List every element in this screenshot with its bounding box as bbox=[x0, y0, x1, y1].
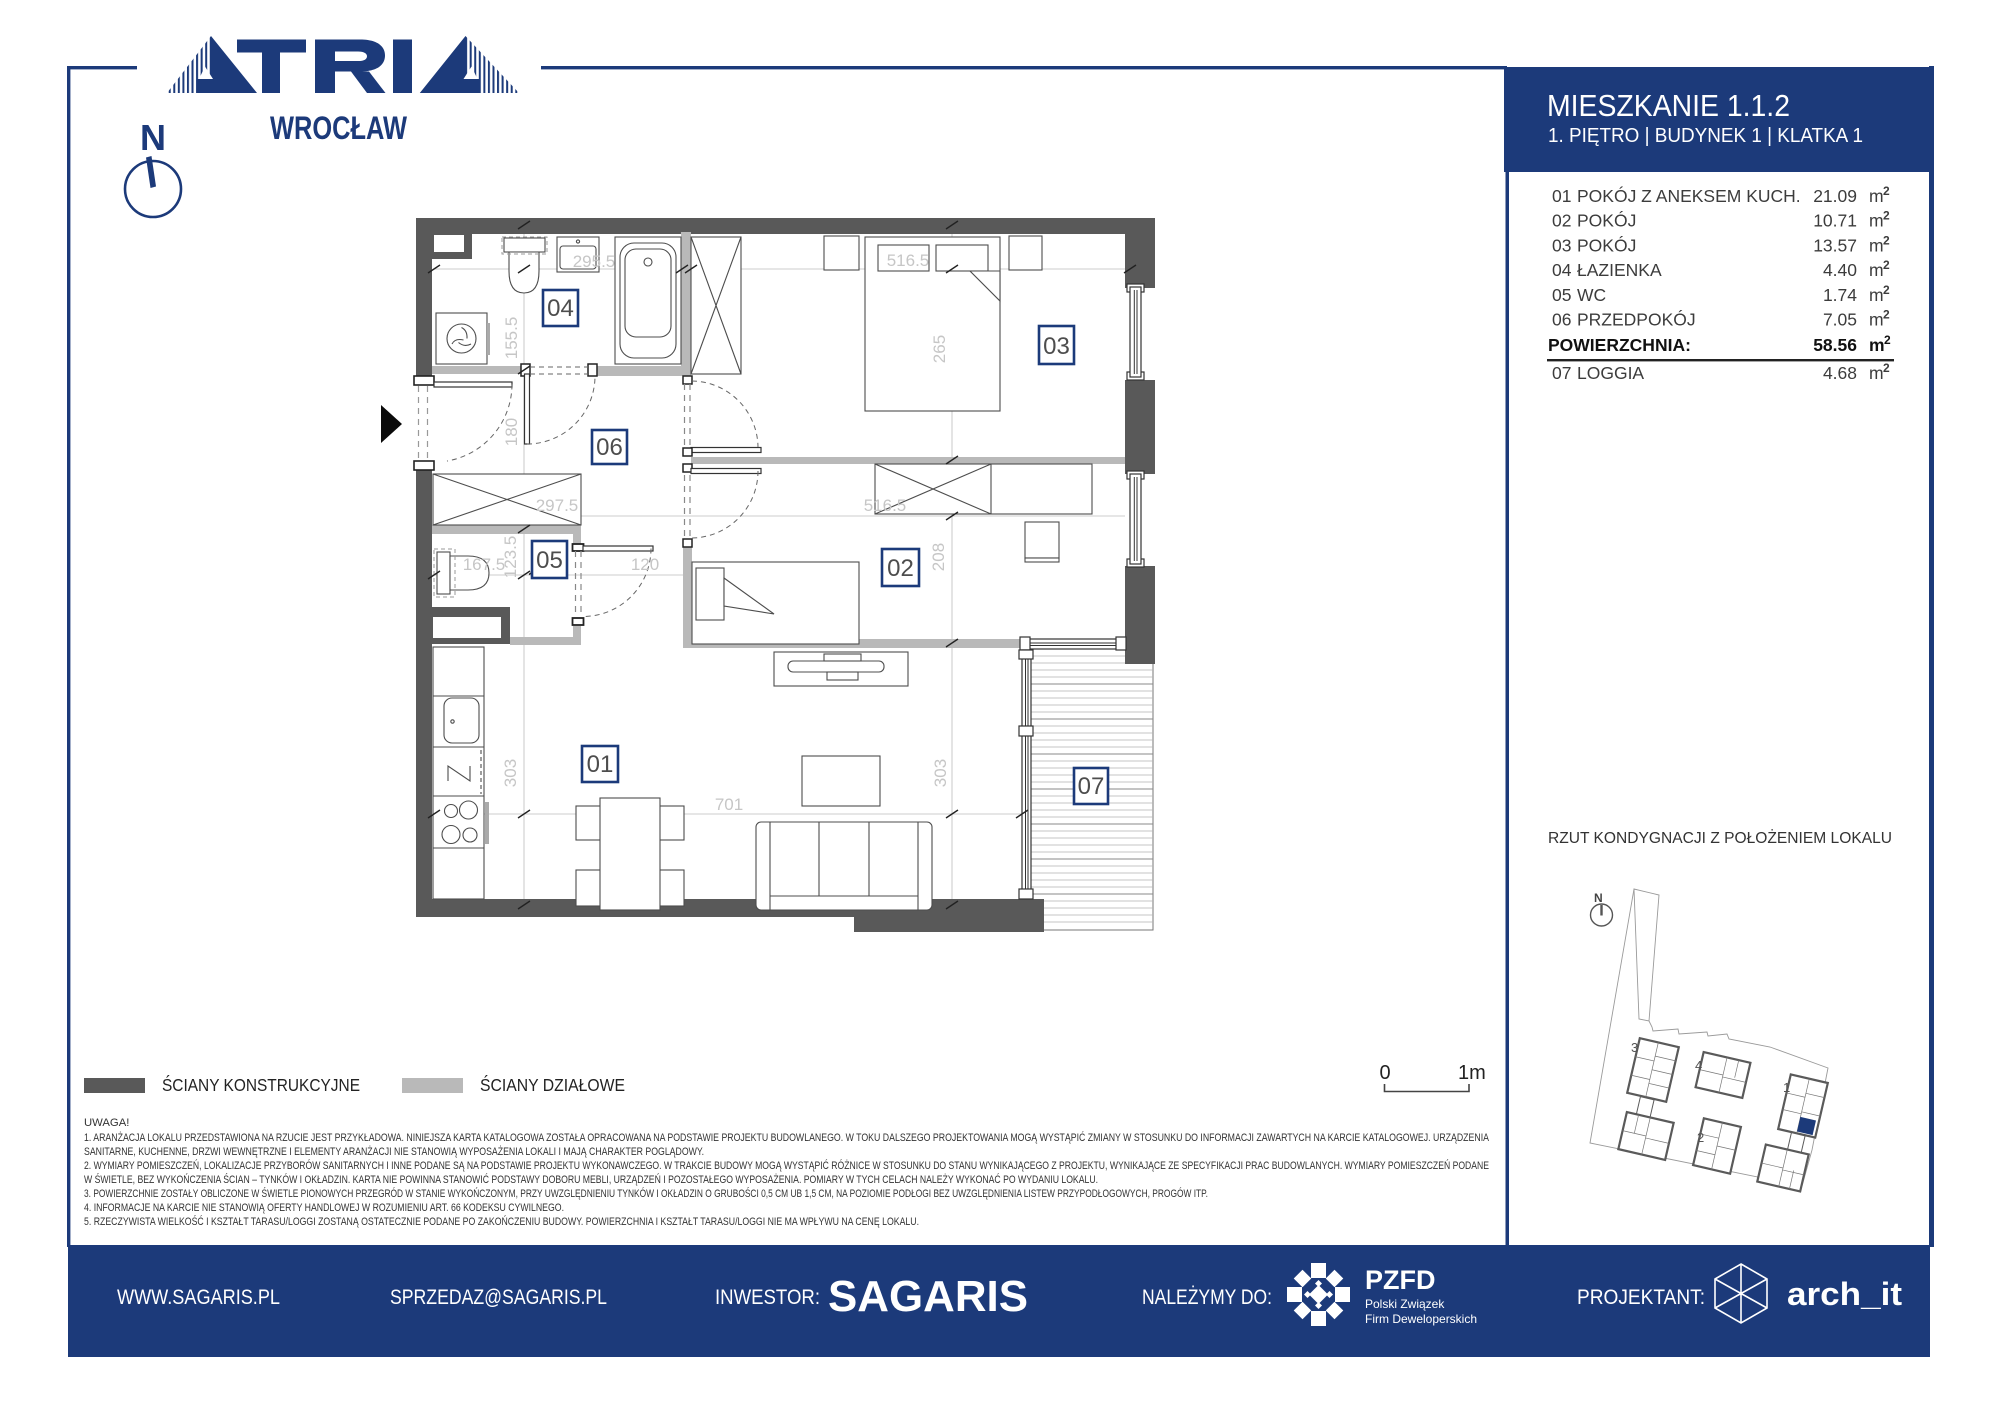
svg-text:INWESTOR:: INWESTOR: bbox=[715, 1286, 820, 1309]
svg-text:04: 04 bbox=[547, 295, 574, 322]
svg-text:POKÓJ: POKÓJ bbox=[1577, 210, 1636, 231]
svg-text:Polski Związek: Polski Związek bbox=[1365, 1297, 1445, 1311]
svg-text:58.56: 58.56 bbox=[1813, 335, 1857, 355]
svg-text:WROCŁAW: WROCŁAW bbox=[270, 110, 408, 146]
svg-text:21.09: 21.09 bbox=[1813, 186, 1857, 206]
svg-text:m: m bbox=[1869, 186, 1884, 206]
svg-text:NALEŻYMY DO:: NALEŻYMY DO: bbox=[1142, 1286, 1272, 1309]
svg-text:05: 05 bbox=[536, 547, 563, 574]
svg-text:2: 2 bbox=[1883, 233, 1890, 247]
svg-text:13.57: 13.57 bbox=[1813, 235, 1857, 255]
svg-text:303: 303 bbox=[931, 759, 950, 787]
svg-text:POKÓJ: POKÓJ bbox=[1577, 234, 1636, 255]
svg-text:01: 01 bbox=[587, 751, 614, 778]
svg-text:10.71: 10.71 bbox=[1813, 211, 1857, 231]
svg-text:N: N bbox=[140, 117, 166, 158]
svg-text:ŁAZIENKA: ŁAZIENKA bbox=[1577, 260, 1662, 280]
svg-text:m: m bbox=[1869, 310, 1884, 330]
svg-text:4: 4 bbox=[1695, 1058, 1702, 1073]
svg-text:208: 208 bbox=[929, 543, 948, 571]
svg-text:03: 03 bbox=[1552, 235, 1571, 255]
svg-text:SAGARIS: SAGARIS bbox=[828, 1272, 1028, 1321]
svg-text:05: 05 bbox=[1552, 285, 1571, 305]
svg-text:0: 0 bbox=[1379, 1062, 1390, 1084]
svg-text:07: 07 bbox=[1552, 363, 1571, 383]
svg-text:04: 04 bbox=[1552, 260, 1572, 280]
svg-text:265: 265 bbox=[930, 335, 949, 363]
svg-text:1. PIĘTRO | BUDYNEK 1 | KLATKA: 1. PIĘTRO | BUDYNEK 1 | KLATKA 1 bbox=[1548, 124, 1863, 147]
svg-text:295.5: 295.5 bbox=[573, 252, 616, 271]
svg-text:3. POWIERZCHNIE ZOSTAŁY OBLICZ: 3. POWIERZCHNIE ZOSTAŁY OBLICZONE W ŚWIE… bbox=[84, 1187, 1208, 1200]
svg-text:ŚCIANY KONSTRUKCYJNE: ŚCIANY KONSTRUKCYJNE bbox=[162, 1074, 360, 1095]
svg-text:N: N bbox=[1594, 891, 1603, 905]
svg-text:m: m bbox=[1869, 235, 1884, 255]
svg-text:4.40: 4.40 bbox=[1823, 260, 1857, 280]
svg-text:03: 03 bbox=[1043, 333, 1070, 360]
svg-text:123.5: 123.5 bbox=[501, 536, 520, 579]
svg-text:5. RZECZYWISTA WIELKOŚĆ I KSZT: 5. RZECZYWISTA WIELKOŚĆ I KSZTAŁT TARASU… bbox=[84, 1215, 919, 1228]
svg-text:m: m bbox=[1869, 285, 1884, 305]
svg-text:2: 2 bbox=[1697, 1130, 1704, 1145]
svg-text:Firm Deweloperskich: Firm Deweloperskich bbox=[1365, 1312, 1477, 1326]
svg-text:PRZEDPOKÓJ: PRZEDPOKÓJ bbox=[1577, 309, 1696, 330]
svg-text:1m: 1m bbox=[1458, 1062, 1486, 1084]
svg-text:arch_it: arch_it bbox=[1787, 1276, 1902, 1312]
svg-text:MIESZKANIE 1.1.2: MIESZKANIE 1.1.2 bbox=[1547, 88, 1790, 123]
svg-text:3: 3 bbox=[1631, 1040, 1638, 1055]
svg-text:m: m bbox=[1869, 335, 1885, 355]
svg-text:1. ARANŻACJA LOKALU PRZEDSTAWI: 1. ARANŻACJA LOKALU PRZEDSTAWIONA NA RZU… bbox=[84, 1131, 1489, 1144]
svg-text:2. WYMIARY POMIESZCZEŃ, LOKALI: 2. WYMIARY POMIESZCZEŃ, LOKALIZACJE PRZY… bbox=[84, 1159, 1489, 1172]
svg-text:516.5: 516.5 bbox=[887, 251, 930, 270]
svg-text:PROJEKTANT:: PROJEKTANT: bbox=[1577, 1286, 1705, 1309]
svg-text:1: 1 bbox=[1783, 1080, 1790, 1095]
svg-text:7.05: 7.05 bbox=[1823, 310, 1857, 330]
svg-text:LOGGIA: LOGGIA bbox=[1577, 363, 1644, 383]
svg-text:m: m bbox=[1869, 260, 1884, 280]
svg-text:701: 701 bbox=[715, 795, 743, 814]
svg-text:UWAGA!: UWAGA! bbox=[84, 1117, 129, 1129]
svg-text:2: 2 bbox=[1884, 333, 1891, 347]
svg-text:2: 2 bbox=[1883, 209, 1890, 223]
svg-text:m: m bbox=[1869, 211, 1884, 231]
svg-text:W ŚWIETLE, BEZ WYKOŃCZENIA ŚCI: W ŚWIETLE, BEZ WYKOŃCZENIA ŚCIAN – TYNKÓ… bbox=[84, 1173, 1098, 1186]
svg-text:WWW.SAGARIS.PL: WWW.SAGARIS.PL bbox=[117, 1286, 280, 1309]
svg-text:01: 01 bbox=[1552, 186, 1571, 206]
svg-text:4. INFORMACJE NA KARCIE NIE ST: 4. INFORMACJE NA KARCIE NIE STANOWIĄ OFE… bbox=[84, 1202, 564, 1214]
svg-text:07: 07 bbox=[1078, 773, 1105, 800]
svg-text:m: m bbox=[1869, 363, 1884, 383]
svg-text:155.5: 155.5 bbox=[502, 317, 521, 360]
svg-text:2: 2 bbox=[1883, 361, 1890, 375]
svg-text:SANITARNE, KUCHENNE, DRZWI WEW: SANITARNE, KUCHENNE, DRZWI WEWNĘTRZNE I … bbox=[84, 1145, 704, 1158]
svg-text:2: 2 bbox=[1883, 283, 1890, 297]
svg-text:120: 120 bbox=[631, 555, 659, 574]
svg-text:SPRZEDAZ@SAGARIS.PL: SPRZEDAZ@SAGARIS.PL bbox=[390, 1286, 607, 1309]
svg-text:06: 06 bbox=[596, 434, 623, 461]
svg-text:167.5: 167.5 bbox=[463, 555, 506, 574]
svg-text:4.68: 4.68 bbox=[1823, 363, 1857, 383]
svg-text:WC: WC bbox=[1577, 285, 1606, 305]
svg-text:POWIERZCHNIA:: POWIERZCHNIA: bbox=[1548, 335, 1691, 355]
svg-text:POKÓJ Z ANEKSEM KUCH.: POKÓJ Z ANEKSEM KUCH. bbox=[1577, 185, 1801, 206]
svg-text:02: 02 bbox=[1552, 211, 1571, 231]
svg-text:PZFD: PZFD bbox=[1365, 1265, 1436, 1295]
svg-text:2: 2 bbox=[1883, 184, 1890, 198]
svg-text:06: 06 bbox=[1552, 310, 1571, 330]
svg-text:297.5: 297.5 bbox=[536, 496, 579, 515]
svg-text:RZUT KONDYGNACJI Z POŁOŻENIEM: RZUT KONDYGNACJI Z POŁOŻENIEM LOKALU bbox=[1548, 828, 1892, 847]
svg-text:2: 2 bbox=[1883, 308, 1890, 322]
svg-text:1.74: 1.74 bbox=[1823, 285, 1857, 305]
svg-text:2: 2 bbox=[1883, 258, 1890, 272]
svg-text:516.5: 516.5 bbox=[864, 496, 907, 515]
svg-text:180: 180 bbox=[502, 418, 521, 446]
svg-text:303: 303 bbox=[501, 759, 520, 787]
svg-text:02: 02 bbox=[887, 555, 914, 582]
svg-text:ŚCIANY DZIAŁOWE: ŚCIANY DZIAŁOWE bbox=[480, 1074, 625, 1095]
